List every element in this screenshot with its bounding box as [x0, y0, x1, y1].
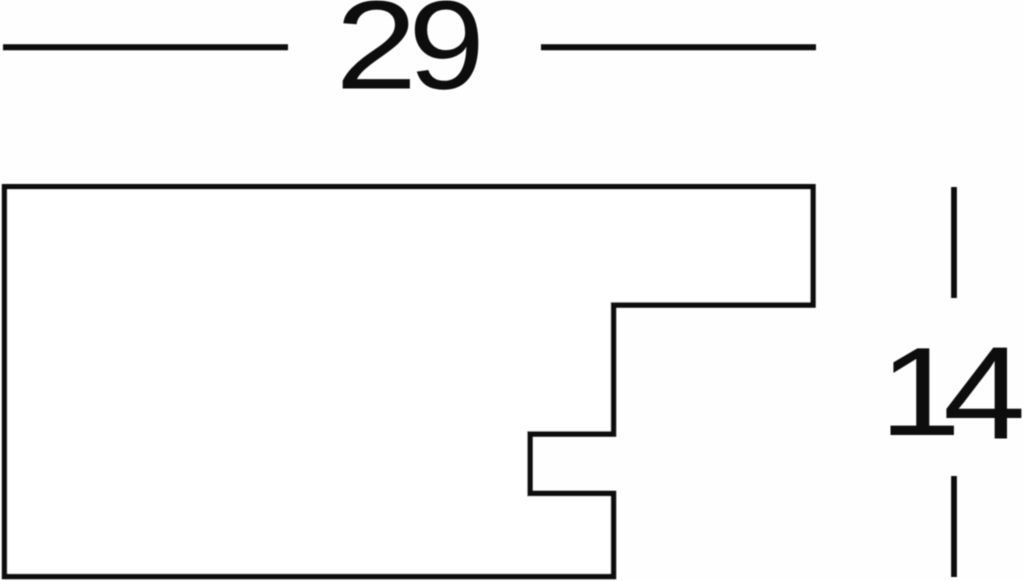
svg-text:9: 9	[408, 0, 484, 115]
svg-text:4: 4	[943, 319, 1024, 466]
svg-text:2: 2	[335, 0, 417, 116]
